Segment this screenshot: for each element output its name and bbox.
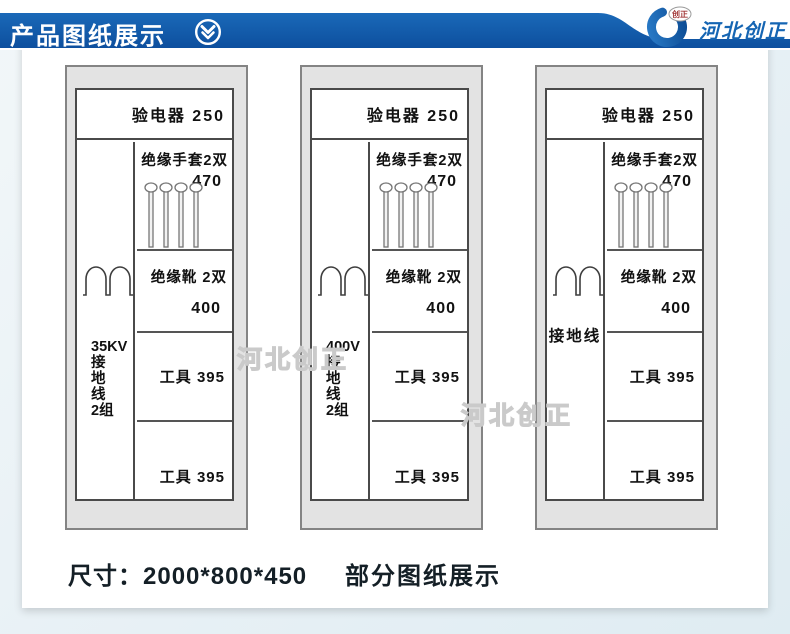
label-line: 35KV bbox=[91, 339, 127, 355]
compartment-tools-upper: 工具 395 bbox=[372, 333, 467, 422]
compartment-tools-lower: 工具 395 bbox=[372, 422, 467, 499]
compartment-tools-upper: 工具 395 bbox=[607, 333, 702, 422]
label-line: 2组 bbox=[91, 403, 127, 419]
partial-drawings-note: 部分图纸展示 bbox=[345, 556, 501, 591]
cabinet-diagram-ground-wire: 验电器 250 接地线 绝缘手套2双 470 bbox=[535, 65, 718, 530]
dimensions-text: 尺寸：2000*800*450 bbox=[68, 556, 307, 591]
compartment-electroscope: 验电器 250 bbox=[312, 90, 467, 140]
watermark: 河北创正 bbox=[461, 396, 573, 432]
boots-label: 绝缘靴 2双 bbox=[372, 266, 467, 287]
label-line: 线 bbox=[91, 387, 127, 403]
cabinet-diagram-400v: 验电器 250 400V 接 地 线 2组 绝缘手套2双 470 bbox=[300, 65, 483, 530]
tools-label: 工具 395 bbox=[160, 466, 232, 487]
gloves-label: 绝缘手套2双 bbox=[376, 149, 463, 170]
label-line: 地 bbox=[91, 371, 127, 387]
insulating-rod-icons bbox=[141, 182, 207, 250]
cabinet-left-column: 接地线 bbox=[547, 142, 605, 499]
label-line: 接 bbox=[91, 355, 127, 371]
cabinet-left-column: 400V 接 地 线 2组 bbox=[312, 142, 370, 499]
tools-label: 工具 395 bbox=[395, 366, 467, 387]
gloves-label: 绝缘手套2双 bbox=[141, 149, 228, 170]
cabinet-right-column: 绝缘手套2双 470 绝缘靴 2双 bbox=[607, 142, 702, 499]
boots-label: 绝缘靴 2双 bbox=[137, 266, 232, 287]
compartment-gloves: 绝缘手套2双 470 bbox=[607, 142, 702, 251]
cabinet-right-column: 绝缘手套2双 470 绝缘靴 2双 bbox=[137, 142, 232, 499]
cabinet-inner: 验电器 250 400V 接 地 线 2组 绝缘手套2双 470 bbox=[310, 88, 469, 501]
ground-clamp-symbol bbox=[83, 265, 133, 297]
insulating-rod-icons bbox=[611, 182, 677, 250]
tools-label: 工具 395 bbox=[395, 466, 467, 487]
brand-name: 河北创正 bbox=[699, 15, 787, 44]
page-title: 产品图纸展示 bbox=[10, 16, 166, 51]
label-line: 2组 bbox=[326, 403, 360, 419]
compartment-electroscope: 验电器 250 bbox=[77, 90, 232, 140]
compartment-gloves: 绝缘手套2双 470 bbox=[137, 142, 232, 251]
cabinet-inner: 验电器 250 35KV 接 地 线 2组 绝缘手套2双 470 bbox=[75, 88, 234, 501]
boots-height-value: 400 bbox=[372, 300, 467, 318]
chevron-down-icon bbox=[193, 17, 223, 47]
cabinet-diagram-35kv: 验电器 250 35KV 接 地 线 2组 绝缘手套2双 470 bbox=[65, 65, 248, 530]
gloves-label: 绝缘手套2双 bbox=[611, 149, 698, 170]
cabinet-right-column: 绝缘手套2双 470 绝缘靴 2双 bbox=[372, 142, 467, 499]
watermark: 河北创正 bbox=[237, 340, 349, 376]
compartment-gloves: 绝缘手套2双 470 bbox=[372, 142, 467, 251]
compartment-boots: 绝缘靴 2双 400 bbox=[137, 251, 232, 333]
boots-height-value: 400 bbox=[607, 300, 702, 318]
insulating-rod-icons bbox=[376, 182, 442, 250]
left-column-label: 接地线 bbox=[547, 324, 603, 346]
tools-label: 工具 395 bbox=[630, 366, 702, 387]
cabinet-left-column: 35KV 接 地 线 2组 bbox=[77, 142, 135, 499]
tools-label: 工具 395 bbox=[160, 366, 232, 387]
cabinet-inner: 验电器 250 接地线 绝缘手套2双 470 bbox=[545, 88, 704, 501]
brand-badge-text: 创正 bbox=[671, 9, 688, 19]
compartment-boots: 绝缘靴 2双 400 bbox=[372, 251, 467, 333]
brand-logo-icon: 创正 bbox=[646, 5, 692, 49]
header: 产品图纸展示 创正 河北创正 bbox=[0, 0, 790, 50]
compartment-tools-lower: 工具 395 bbox=[607, 422, 702, 499]
compartment-electroscope: 验电器 250 bbox=[547, 90, 702, 140]
boots-label: 绝缘靴 2双 bbox=[607, 266, 702, 287]
ground-clamp-symbol bbox=[553, 265, 603, 297]
left-column-label: 35KV 接 地 线 2组 bbox=[91, 339, 127, 419]
compartment-tools-upper: 工具 395 bbox=[137, 333, 232, 422]
ground-clamp-symbol bbox=[318, 265, 368, 297]
boots-height-value: 400 bbox=[137, 300, 232, 318]
tools-label: 工具 395 bbox=[630, 466, 702, 487]
compartment-tools-lower: 工具 395 bbox=[137, 422, 232, 499]
compartment-boots: 绝缘靴 2双 400 bbox=[607, 251, 702, 333]
label-line: 线 bbox=[326, 387, 360, 403]
